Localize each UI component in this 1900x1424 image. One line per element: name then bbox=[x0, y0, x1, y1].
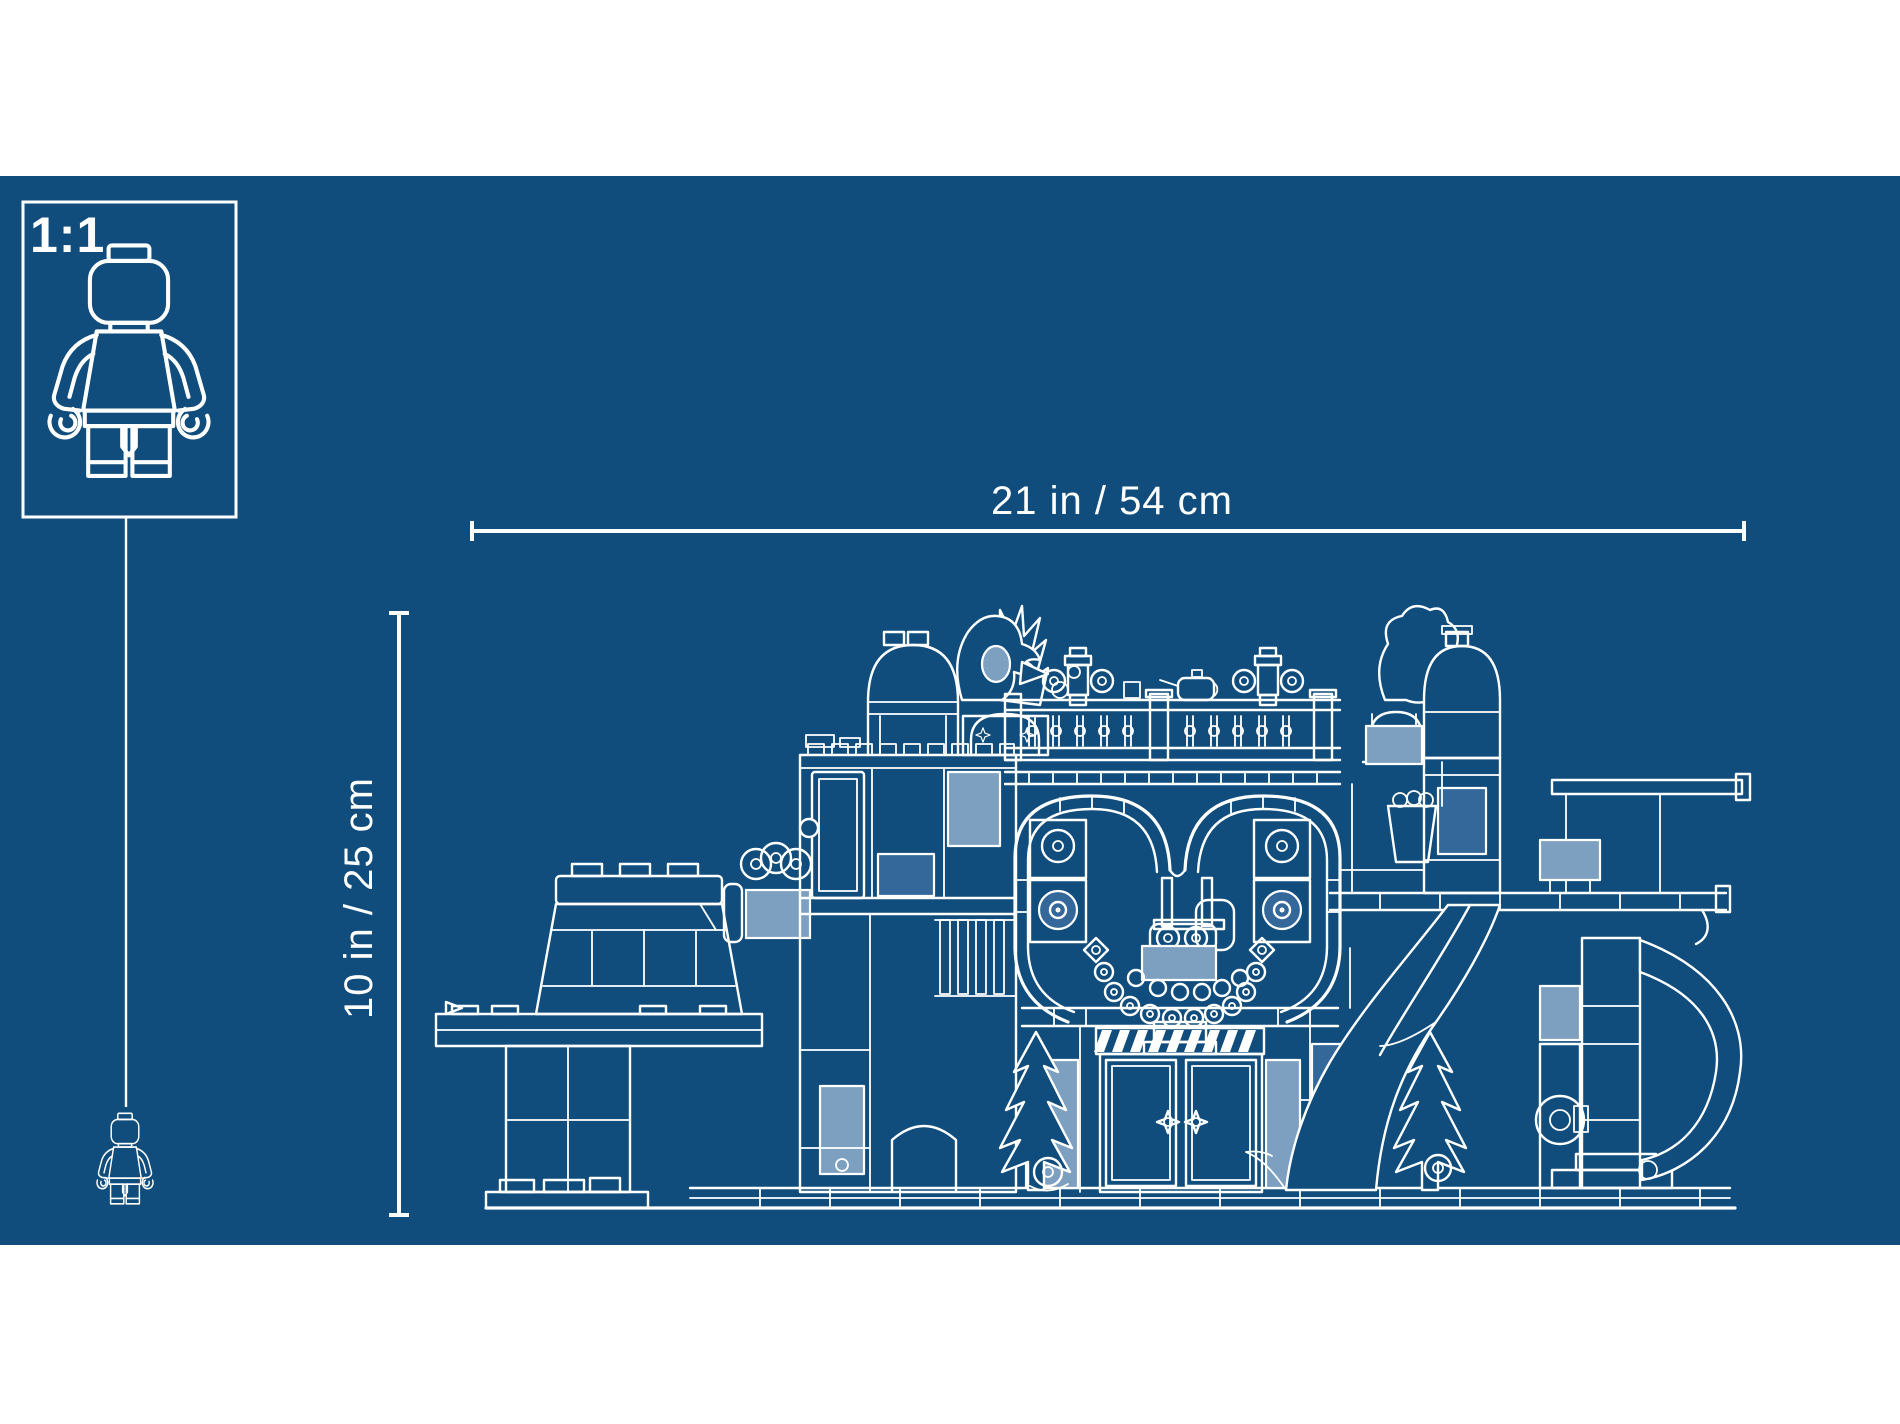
scale-label: 1:1 bbox=[30, 207, 105, 263]
height-dimension-label: 10 in / 25 cm bbox=[337, 777, 381, 1019]
blueprint-background bbox=[0, 176, 1900, 1245]
width-dimension-label: 21 in / 54 cm bbox=[991, 479, 1233, 523]
blueprint-illustration: 1:1 21 in / 54 cm 10 in / 25 cm bbox=[0, 0, 1900, 1424]
product-dimensions-page: 1:1 21 in / 54 cm 10 in / 25 cm bbox=[0, 0, 1900, 1424]
